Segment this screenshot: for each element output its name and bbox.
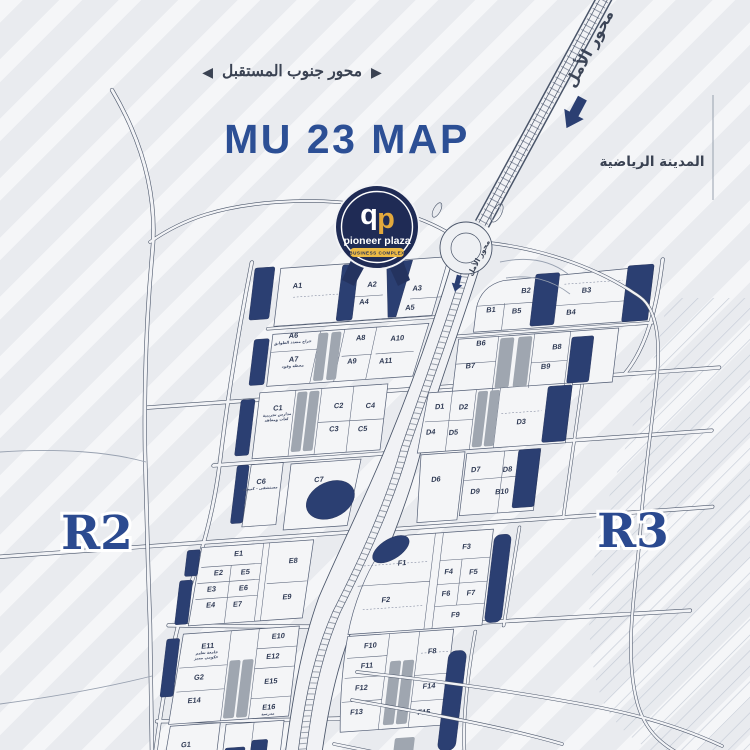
plot-label-G2: G2 (194, 672, 205, 682)
plot-label-B9: B9 (540, 362, 551, 372)
highway-arrow-icon (557, 93, 592, 133)
plot-label-D9: D9 (470, 486, 481, 496)
right-arrow-icon: ▶ (371, 65, 382, 79)
plot-label-E5: E5 (240, 567, 250, 577)
plot-label-F6: F6 (441, 589, 451, 599)
plot-label-B5: B5 (511, 306, 522, 316)
navy-strip (250, 739, 268, 750)
plot-label-B7: B7 (465, 361, 476, 371)
plot-label-F10: F10 (364, 640, 378, 650)
navy-strip (249, 339, 270, 386)
plot-label-E10: E10 (271, 631, 285, 641)
plot-label-F1: F1 (397, 558, 407, 568)
plot-label-F12: F12 (354, 683, 368, 693)
plot-label-F3: F3 (462, 542, 472, 552)
plot-label-G1: G1 (181, 740, 192, 750)
plot-label-F9: F9 (451, 610, 461, 620)
logo-monogram-q: q (360, 199, 378, 231)
navy-strip (249, 267, 275, 320)
plot-label-A11: A11 (379, 356, 393, 366)
plot-label-D3: D3 (516, 417, 527, 427)
plot-label-A3: A3 (412, 283, 423, 293)
plot-label-F8: F8 (427, 646, 437, 656)
plot-label-E1: E1 (234, 549, 244, 559)
page-title: MU 23 MAP (224, 116, 470, 163)
plot-label-A8: A8 (355, 333, 366, 343)
plot-label-A10: A10 (390, 333, 405, 343)
plot-label-A2: A2 (367, 279, 378, 289)
top-axis-header: ◀ محور جنوب المستقبل ▶ (202, 62, 382, 81)
plot-label-E15: E15 (264, 676, 278, 686)
plot-label-A1: A1 (292, 281, 303, 291)
plot-label-E12: E12 (266, 651, 280, 661)
plot-label-E9: E9 (282, 592, 292, 602)
plot-label-F2: F2 (381, 595, 391, 605)
logo-tagline: BUSINESS COMPLEX (349, 251, 405, 256)
map-canvas: A1A2A3A4A5A6جراج متعدد الطوابقA7محطة وقو… (0, 0, 750, 750)
plot-label-E2: E2 (213, 568, 223, 578)
plot-label-E14: E14 (187, 695, 202, 705)
sports-city-label: المدينة الرياضية (600, 154, 705, 170)
plot-label-B8: B8 (552, 342, 563, 352)
plot-label-D2: D2 (458, 402, 469, 412)
top-axis-label: محور جنوب المستقبل (222, 62, 362, 81)
plot-label-F7: F7 (466, 588, 476, 598)
plot-label-D7: D7 (471, 465, 482, 475)
plot-label-E6: E6 (238, 583, 248, 593)
gray-strip (393, 737, 415, 750)
block-g1 (164, 723, 221, 750)
region-label-r2: R2 (61, 506, 133, 561)
left-arrow-icon: ◀ (202, 65, 213, 79)
plot-label-D6: D6 (431, 474, 442, 484)
plot-label-D1: D1 (434, 402, 445, 412)
plot-label-A9: A9 (347, 356, 358, 366)
region-label-r3: R3 (597, 504, 669, 559)
plot-label-F5: F5 (469, 567, 479, 577)
map-poster: A1A2A3A4A5A6جراج متعدد الطوابقA7محطة وقو… (0, 0, 750, 750)
plot-label-C7: C7 (314, 475, 325, 485)
plot-label-E8: E8 (288, 556, 298, 566)
plot-label-B6: B6 (476, 338, 487, 348)
plot-label-C5: C5 (357, 424, 368, 434)
plot-note-E16: مدرسة (261, 711, 275, 717)
logo-brand: pioneer plaza (343, 235, 410, 247)
plot-label-C2: C2 (333, 401, 344, 411)
plot-label-D5: D5 (448, 427, 459, 437)
plot-label-F13: F13 (350, 707, 364, 717)
traffic-island (430, 201, 444, 218)
plot-label-E3: E3 (207, 584, 217, 594)
plot-label-B3: B3 (581, 285, 592, 295)
plot-label-B2: B2 (521, 286, 532, 296)
plot-label-D8: D8 (502, 464, 513, 474)
plot-label-A5: A5 (405, 303, 416, 313)
logo-monogram-p: p (377, 203, 395, 235)
plot-label-B1: B1 (486, 305, 497, 315)
plot-label-C3: C3 (329, 424, 340, 434)
plot-label-E7: E7 (232, 599, 242, 609)
plot-label-B10: B10 (495, 486, 510, 496)
navy-strip (234, 399, 255, 456)
plot-label-F11: F11 (360, 661, 373, 671)
block-d6 (413, 452, 465, 523)
